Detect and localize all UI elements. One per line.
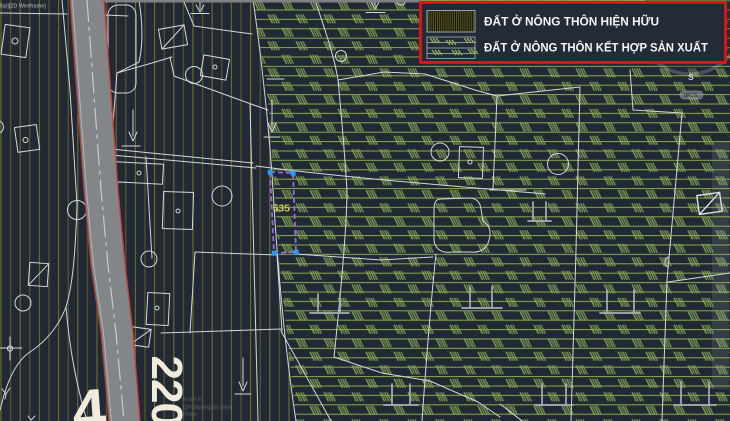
svg-text:theo: theo xyxy=(183,412,198,418)
svg-text:S: S xyxy=(688,72,694,82)
svg-text:WCS: WCS xyxy=(684,93,698,99)
svg-text:535: 535 xyxy=(273,203,291,215)
svg-text:ĐẤT Ở NÔNG THÔN HIỆN HỮU: ĐẤT Ở NÔNG THÔN HIỆN HỮU xyxy=(484,14,659,29)
svg-text:[-][Top][2D Wireframe]: [-][Top][2D Wireframe] xyxy=(0,4,46,10)
svg-text:ĐẤT Ở NÔNG THÔN KẾT HỢP SẢN XU: ĐẤT Ở NÔNG THÔN KẾT HỢP SẢN XUẤT xyxy=(484,40,709,55)
svg-text:4: 4 xyxy=(70,376,109,421)
svg-text:QH duong du kien: QH duong du kien xyxy=(183,405,232,411)
